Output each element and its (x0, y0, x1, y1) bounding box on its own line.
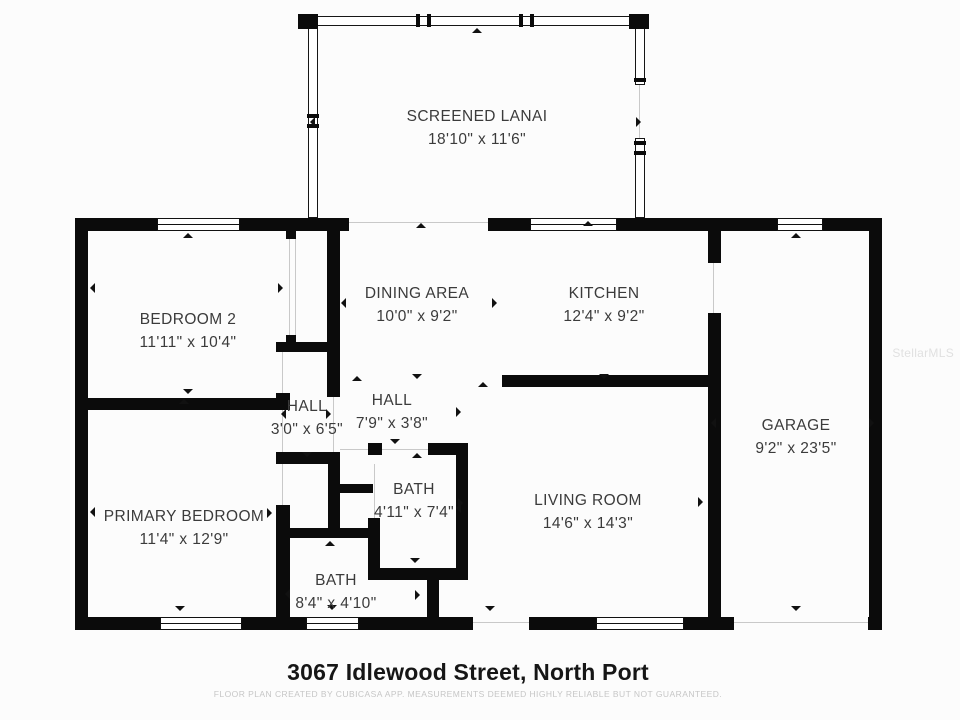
room-dimensions: 8'4" x 4'10" (295, 592, 376, 615)
window-pane-line (306, 623, 359, 625)
up-direction-marker (416, 221, 426, 228)
wall-segment (427, 580, 439, 617)
room-label: BATH8'4" x 4'10" (295, 569, 376, 615)
window-pane-line (596, 623, 684, 625)
up-direction-marker (583, 219, 593, 226)
window-pane-line (530, 224, 617, 226)
room-dimensions: 3'0" x 6'5" (271, 418, 343, 441)
wall-segment (684, 617, 734, 630)
left-direction-marker (454, 503, 461, 513)
right-direction-marker (456, 407, 463, 417)
room-label: LIVING ROOM14'6" x 14'3" (534, 489, 642, 535)
room-label: GARAGE9'2" x 23'5" (755, 414, 836, 460)
window-pane-line (157, 224, 240, 226)
door-opening-line (639, 85, 640, 138)
wall-segment (617, 218, 777, 231)
lanai-screen-wall (306, 16, 645, 26)
up-direction-marker (478, 380, 488, 387)
left-direction-marker (88, 283, 95, 293)
window (530, 218, 617, 231)
down-direction-marker (599, 374, 609, 381)
wall-segment (339, 484, 373, 493)
room-name: PRIMARY BEDROOM (104, 505, 264, 528)
up-direction-marker (472, 26, 482, 33)
window-pane-line (160, 623, 242, 625)
screen-post (629, 14, 649, 29)
right-direction-marker (492, 298, 499, 308)
floorplan-page: SCREENED LANAI18'10" x 11'6"BEDROOM 211'… (0, 0, 960, 720)
up-direction-marker (791, 231, 801, 238)
address-title: 3067 Idlewood Street, North Port (0, 659, 936, 686)
door-opening-line (713, 263, 714, 313)
room-dimensions: 10'0" x 9'2" (365, 305, 469, 328)
screen-post (634, 151, 646, 155)
right-direction-marker (636, 117, 643, 127)
disclaimer-text: FLOOR PLAN CREATED BY CUBICASA APP. MEAS… (0, 689, 936, 699)
room-dimensions: 4'11" x 7'4" (374, 501, 454, 524)
down-direction-marker (485, 606, 495, 613)
left-direction-marker (339, 298, 346, 308)
room-name: LIVING ROOM (534, 489, 642, 512)
up-direction-marker (325, 539, 335, 546)
down-direction-marker (175, 606, 185, 613)
wall-segment (368, 568, 468, 580)
up-direction-marker (183, 231, 193, 238)
wall-segment (286, 227, 296, 239)
room-name: DINING AREA (365, 282, 469, 305)
screen-post (298, 14, 318, 29)
floorplan-drawing: SCREENED LANAI18'10" x 11'6"BEDROOM 211'… (0, 0, 960, 720)
room-name: HALL (271, 395, 343, 418)
window (160, 617, 242, 630)
window (777, 218, 823, 231)
wall-segment (327, 352, 340, 397)
down-direction-marker (791, 606, 801, 613)
screen-post (427, 14, 431, 27)
room-name: BATH (374, 478, 454, 501)
room-dimensions: 11'11" x 10'4" (140, 331, 237, 354)
wall-segment (281, 528, 373, 538)
room-label: DINING AREA10'0" x 9'2" (365, 282, 469, 328)
screen-post (530, 14, 534, 27)
door-opening-line (382, 449, 428, 450)
up-direction-marker (179, 397, 189, 404)
room-label: SCREENED LANAI18'10" x 11'6" (407, 105, 548, 151)
room-dimensions: 14'6" x 14'3" (534, 512, 642, 535)
down-direction-marker (410, 558, 420, 565)
right-direction-marker (278, 283, 285, 293)
screen-post (634, 141, 646, 145)
room-name: BATH (295, 569, 376, 592)
wall-segment (327, 231, 340, 352)
lanai-screen-wall (635, 26, 645, 85)
wall-segment (368, 443, 382, 455)
down-direction-marker (302, 452, 312, 459)
screen-post (416, 14, 420, 27)
right-direction-marker (698, 497, 705, 507)
left-direction-marker (283, 589, 290, 599)
window (306, 617, 359, 630)
room-dimensions: 18'10" x 11'6" (407, 128, 548, 151)
right-direction-marker (415, 590, 422, 600)
wall-segment (242, 617, 306, 630)
room-label: BEDROOM 211'11" x 10'4" (140, 308, 237, 354)
right-direction-marker (869, 418, 876, 428)
lanai-screen-wall (635, 138, 645, 218)
wall-segment (708, 231, 721, 263)
wall-segment (529, 617, 596, 630)
wall-segment (276, 505, 290, 617)
down-direction-marker (412, 374, 422, 381)
room-label: KITCHEN12'4" x 9'2" (563, 282, 644, 328)
room-dimensions: 12'4" x 9'2" (563, 305, 644, 328)
left-direction-marker (88, 507, 95, 517)
door-opening-line (282, 464, 283, 505)
room-name: HALL (356, 389, 428, 412)
window (596, 617, 684, 630)
left-direction-marker (709, 418, 716, 428)
wall-segment (359, 617, 473, 630)
room-label: HALL7'9" x 3'8" (356, 389, 428, 435)
room-label: BATH4'11" x 7'4" (374, 478, 454, 524)
down-direction-marker (183, 389, 193, 396)
room-dimensions: 7'9" x 3'8" (356, 412, 428, 435)
room-name: KITCHEN (563, 282, 644, 305)
room-label: HALL3'0" x 6'5" (271, 395, 343, 441)
door-opening-line (289, 239, 290, 335)
door-opening-line (295, 239, 296, 335)
door-opening-line (340, 449, 368, 450)
wall-segment (488, 218, 530, 231)
mls-watermark: StellarMLS (892, 346, 954, 360)
room-name: SCREENED LANAI (407, 105, 548, 128)
door-opening-line (734, 622, 868, 623)
screen-post (519, 14, 523, 27)
room-label: PRIMARY BEDROOM11'4" x 12'9" (104, 505, 264, 551)
room-dimensions: 9'2" x 23'5" (755, 437, 836, 460)
down-direction-marker (390, 439, 400, 446)
door-opening-line (473, 622, 529, 623)
window (157, 218, 240, 231)
room-name: BEDROOM 2 (140, 308, 237, 331)
wall-segment (75, 218, 88, 630)
wall-segment (708, 313, 721, 617)
door-opening-line (282, 352, 283, 393)
room-dimensions: 11'4" x 12'9" (104, 528, 264, 551)
left-direction-marker (308, 117, 315, 127)
room-name: GARAGE (755, 414, 836, 437)
right-direction-marker (267, 508, 274, 518)
window-pane-line (777, 224, 823, 226)
up-direction-marker (412, 451, 422, 458)
screen-post (634, 78, 646, 82)
up-direction-marker (352, 374, 362, 381)
wall-segment (276, 342, 340, 352)
